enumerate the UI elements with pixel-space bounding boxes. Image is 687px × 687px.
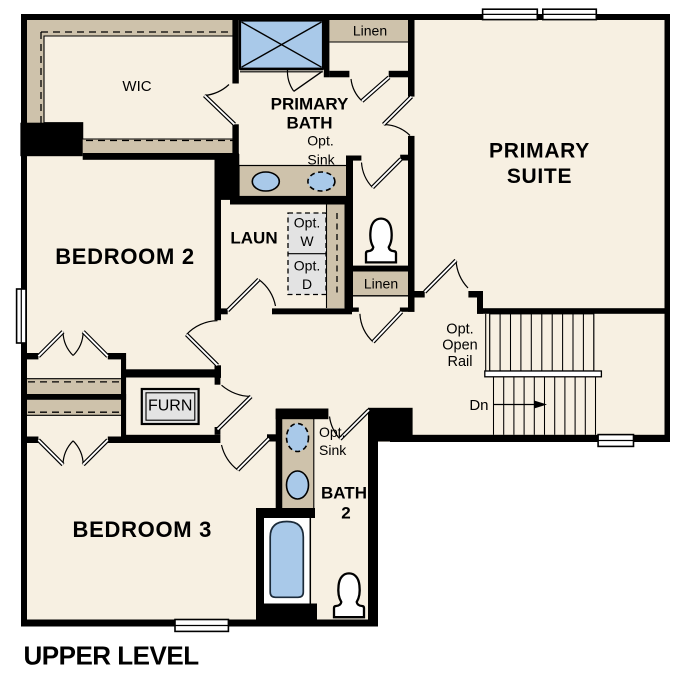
svg-text:Open: Open (442, 338, 477, 354)
svg-text:Opt.: Opt. (446, 322, 473, 338)
svg-text:PRIMARY: PRIMARY (489, 140, 590, 163)
svg-text:Sink: Sink (307, 151, 335, 167)
svg-text:Opt.: Opt. (319, 424, 345, 440)
svg-text:WIC: WIC (122, 78, 151, 95)
svg-text:Opt.: Opt. (294, 215, 320, 231)
svg-text:D: D (302, 276, 312, 292)
svg-text:PRIMARY: PRIMARY (271, 94, 349, 113)
svg-text:Linen: Linen (353, 22, 387, 38)
svg-text:BEDROOM 3: BEDROOM 3 (73, 517, 213, 542)
svg-text:Sink: Sink (319, 442, 347, 458)
svg-text:Rail: Rail (448, 354, 473, 370)
svg-text:BEDROOM 2: BEDROOM 2 (55, 244, 195, 269)
svg-text:Linen: Linen (364, 275, 398, 291)
svg-text:BATH: BATH (287, 114, 333, 133)
svg-text:Opt.: Opt. (307, 132, 333, 148)
svg-text:LAUN: LAUN (230, 229, 277, 248)
svg-text:2: 2 (341, 503, 350, 522)
svg-text:Dn: Dn (469, 397, 488, 414)
svg-text:BATH: BATH (321, 483, 367, 502)
svg-text:SUITE: SUITE (507, 165, 572, 188)
svg-text:W: W (300, 233, 314, 249)
svg-text:FURN: FURN (148, 398, 192, 415)
svg-text:UPPER LEVEL: UPPER LEVEL (24, 641, 200, 671)
svg-text:Opt.: Opt. (294, 258, 320, 274)
